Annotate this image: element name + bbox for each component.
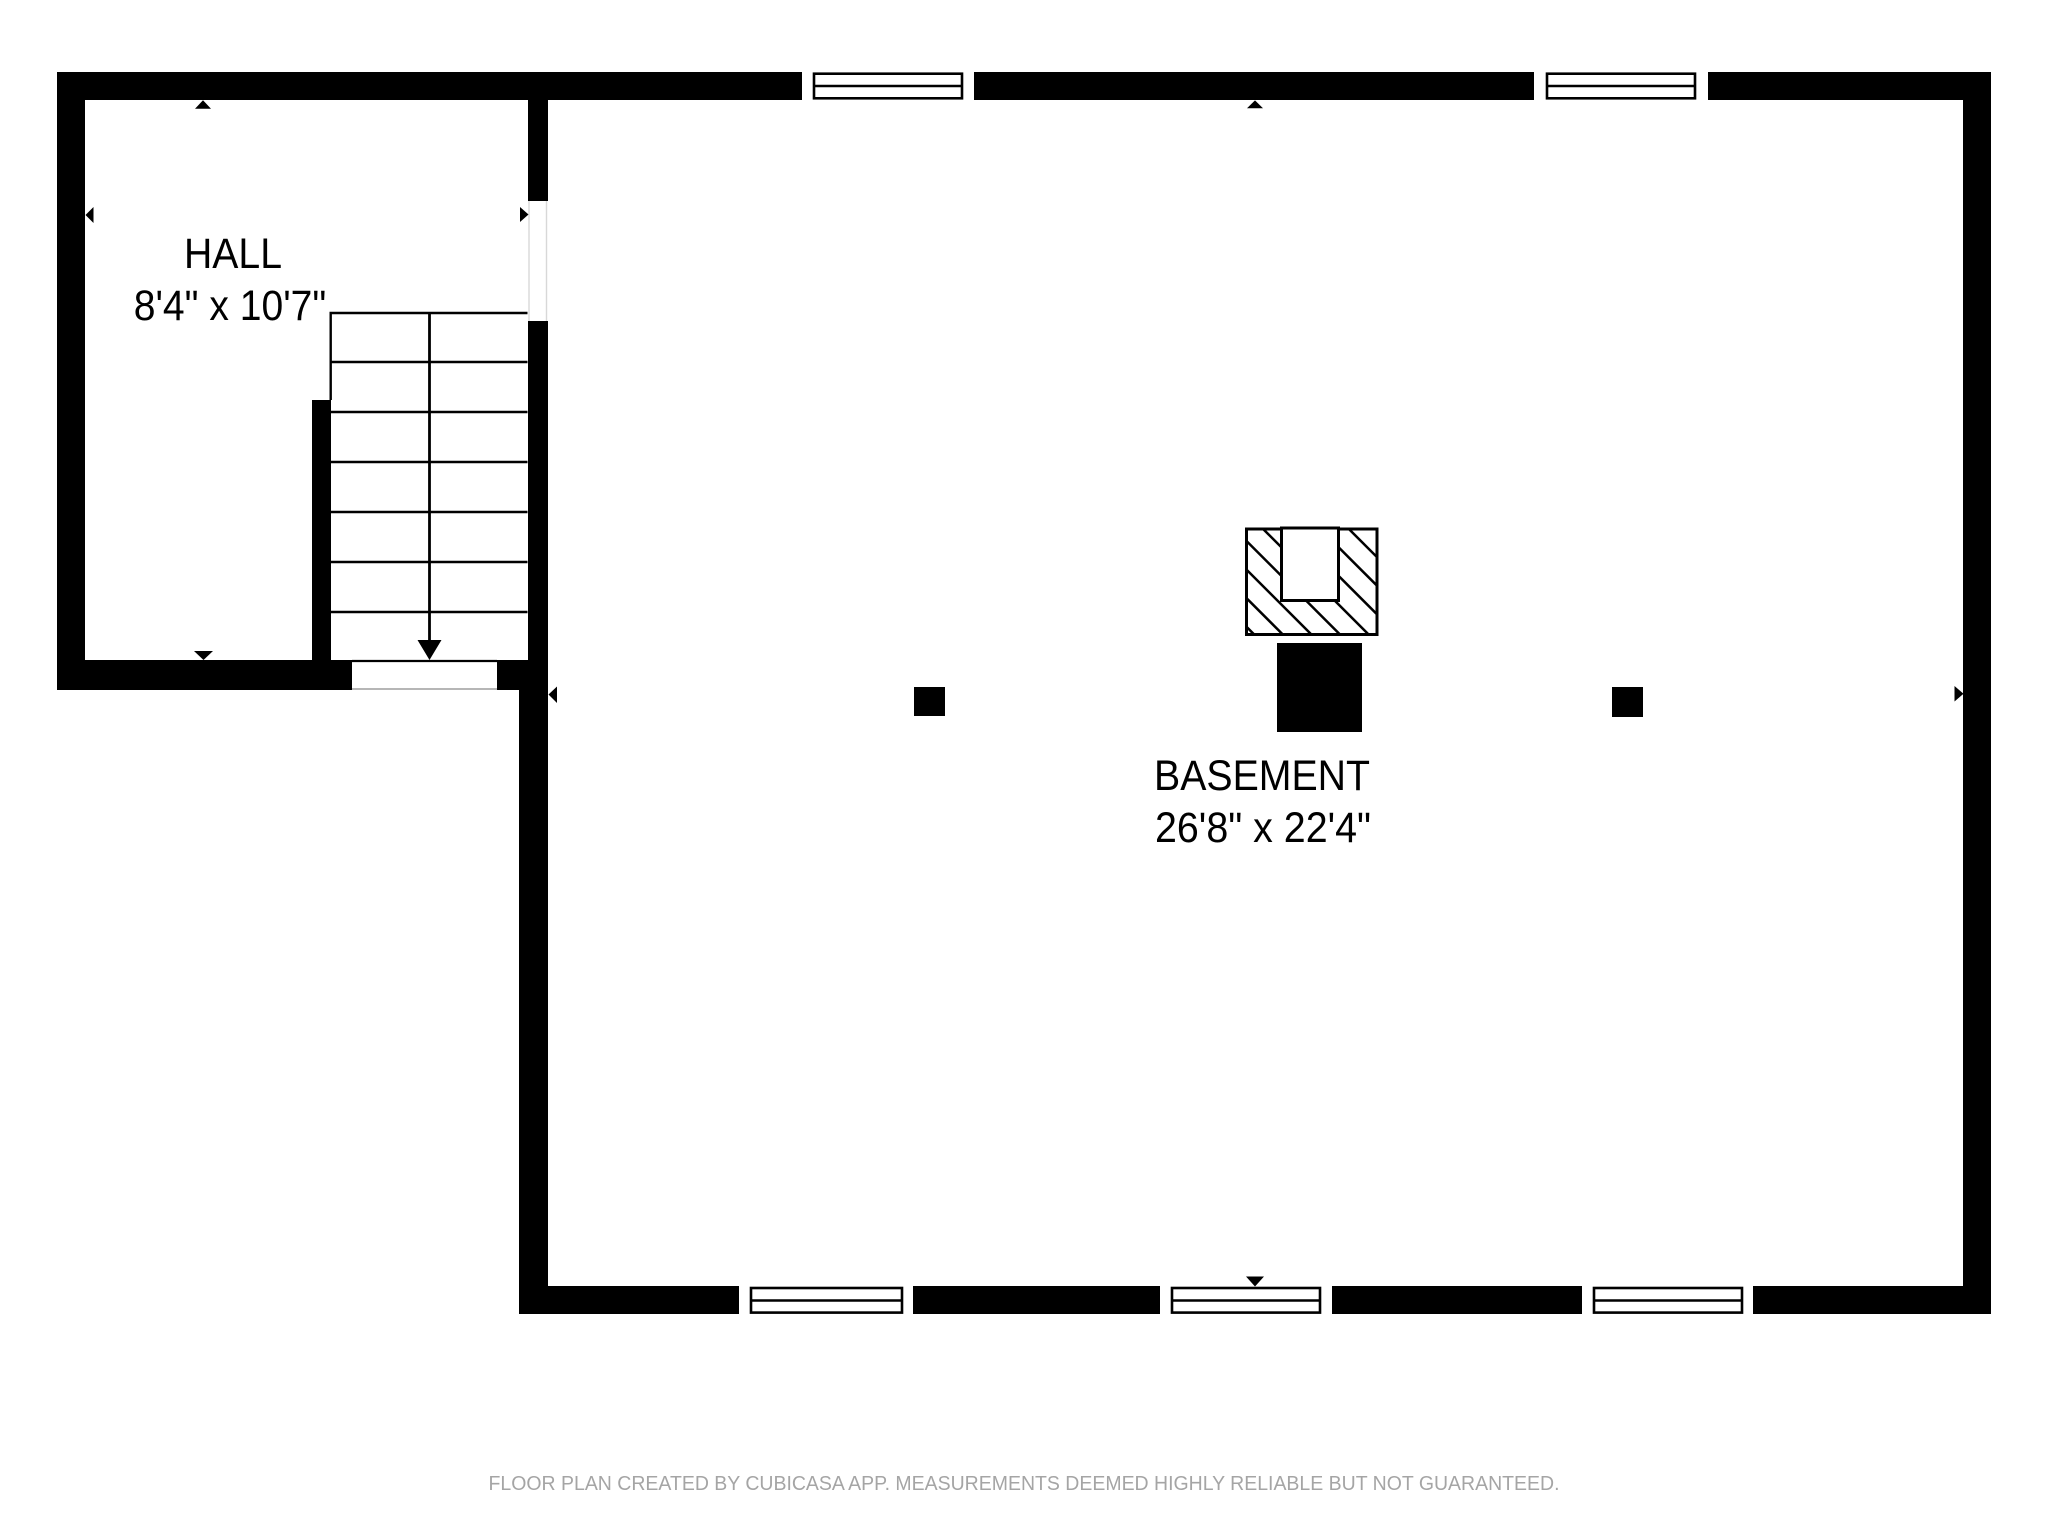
svg-text:26'8" x 22'4": 26'8" x 22'4" (1155, 804, 1371, 852)
svg-text:8'4" x 10'7": 8'4" x 10'7" (134, 282, 327, 330)
svg-text:HALL: HALL (184, 230, 282, 278)
svg-text:BASEMENT: BASEMENT (1154, 752, 1370, 800)
svg-text:FLOOR PLAN CREATED BY CUBICASA: FLOOR PLAN CREATED BY CUBICASA APP. MEAS… (489, 1472, 1560, 1495)
